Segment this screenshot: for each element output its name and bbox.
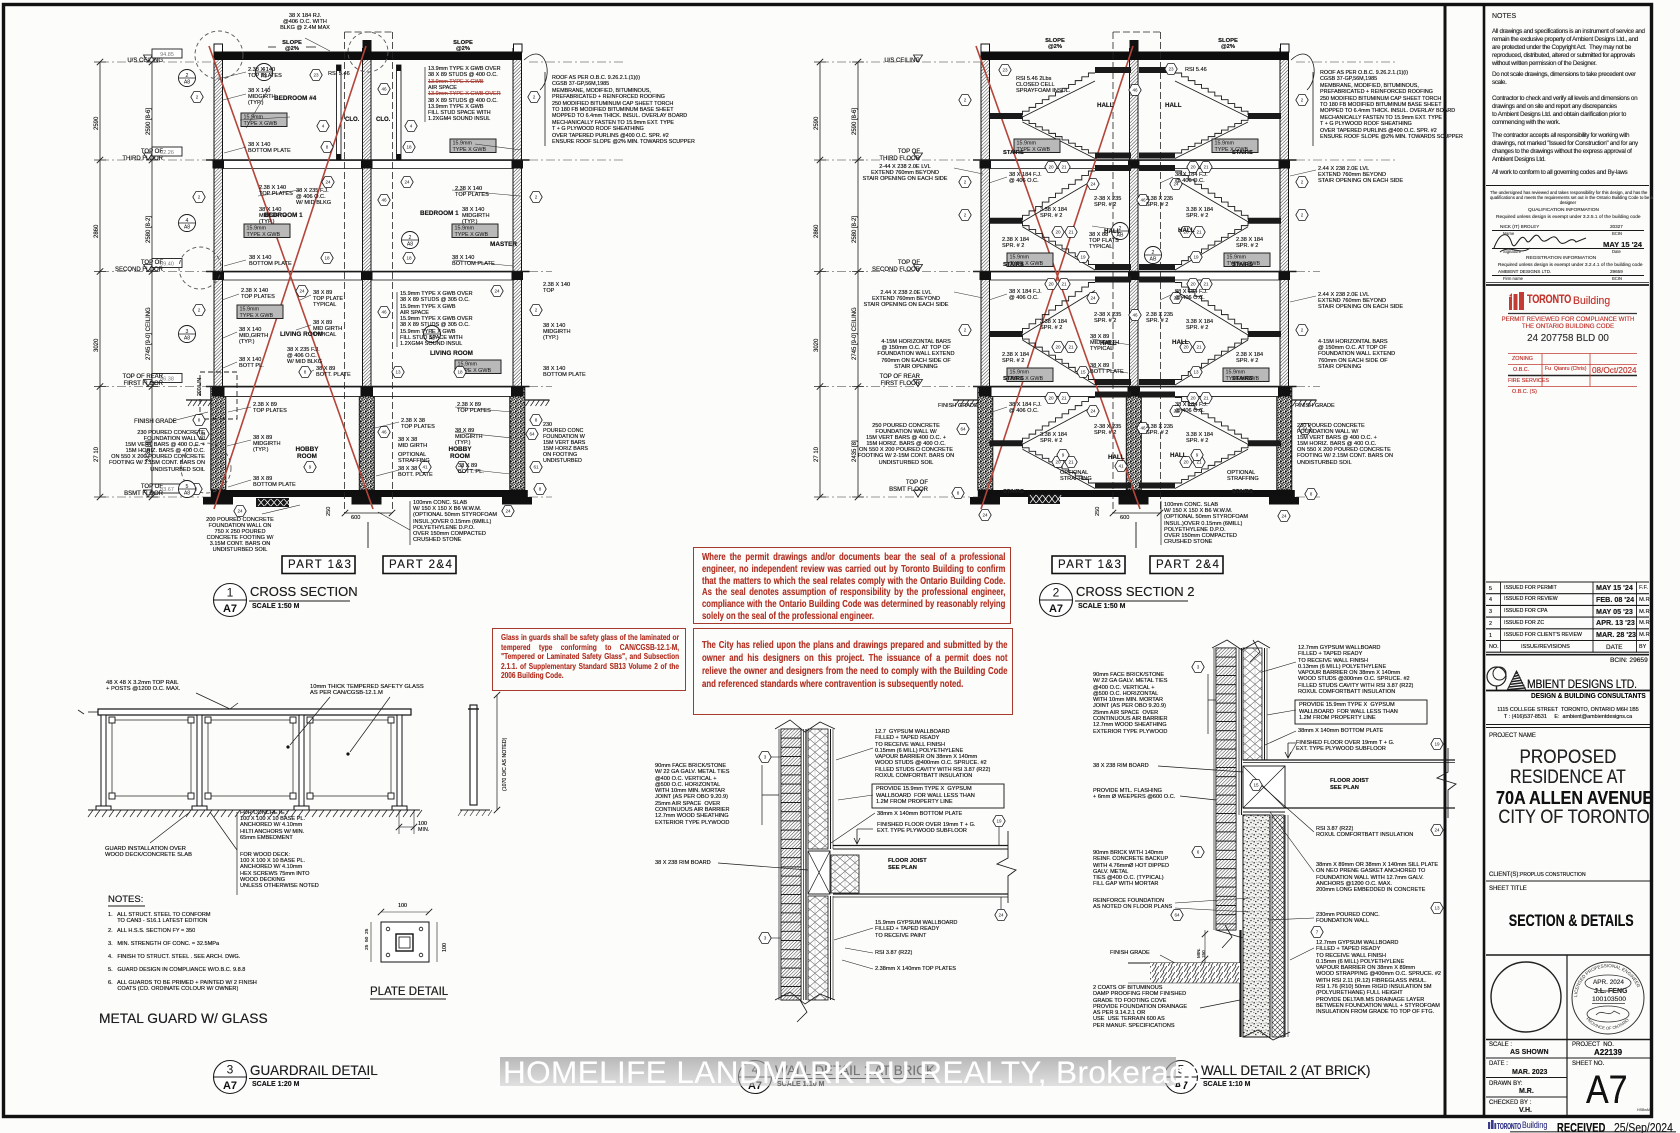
svg-text:21: 21 <box>1068 460 1074 465</box>
svg-text:24: 24 <box>1090 409 1096 414</box>
svg-text:15.9mm: 15.9mm <box>240 307 260 313</box>
svg-text:15.9mm: 15.9mm <box>1010 370 1030 376</box>
svg-text:21: 21 <box>1203 282 1209 287</box>
svg-text:A8: A8 <box>407 242 413 248</box>
svg-text:24: 24 <box>1090 296 1096 301</box>
svg-text:2: 2 <box>535 308 538 313</box>
svg-text:9: 9 <box>1062 453 1065 458</box>
svg-text:TYPE X GWB: TYPE X GWB <box>455 232 489 238</box>
svg-text:21: 21 <box>1068 345 1074 350</box>
svg-text:15: 15 <box>1080 370 1086 375</box>
svg-text:2: 2 <box>533 95 536 100</box>
svg-text:19: 19 <box>1434 742 1440 747</box>
svg-text:AB: AB <box>1150 257 1157 263</box>
svg-text:2: 2 <box>964 180 967 185</box>
svg-text:15.9mm: 15.9mm <box>247 226 267 232</box>
svg-text:2: 2 <box>964 98 967 103</box>
svg-text:A7: A7 <box>223 1080 237 1092</box>
svg-text:2: 2 <box>198 195 201 200</box>
svg-text:A8: A8 <box>184 225 190 231</box>
svg-text:2: 2 <box>1301 328 1304 333</box>
svg-text:21: 21 <box>1196 345 1202 350</box>
svg-text:24: 24 <box>237 509 243 514</box>
svg-text:8: 8 <box>539 487 542 492</box>
svg-text:24: 24 <box>404 180 410 185</box>
svg-text:64: 64 <box>960 427 966 432</box>
svg-text:2: 2 <box>1301 180 1304 185</box>
svg-text:3: 3 <box>764 936 767 941</box>
svg-text:PROVINCE OF ONTARIO: PROVINCE OF ONTARIO <box>1585 1016 1630 1030</box>
svg-text:4: 4 <box>186 218 189 224</box>
svg-text:2: 2 <box>1301 213 1304 218</box>
svg-text:15.9mm: 15.9mm <box>453 141 473 147</box>
svg-text:TYPE X GWB: TYPE X GWB <box>247 232 281 238</box>
svg-text:15.9mm: 15.9mm <box>1017 141 1037 147</box>
svg-text:15.9mm: 15.9mm <box>1010 255 1030 261</box>
svg-text:23: 23 <box>313 73 319 78</box>
svg-text:24: 24 <box>982 513 988 518</box>
svg-text:15.9mm: 15.9mm <box>1226 370 1246 376</box>
svg-text:20: 20 <box>1190 282 1196 287</box>
svg-text:20: 20 <box>1055 230 1061 235</box>
svg-text:2: 2 <box>1301 98 1304 103</box>
svg-text:19: 19 <box>1193 255 1199 260</box>
svg-text:9: 9 <box>1196 453 1199 458</box>
svg-text:24: 24 <box>1434 828 1440 833</box>
svg-text:2: 2 <box>964 328 967 333</box>
svg-text:21: 21 <box>1061 396 1067 401</box>
svg-text:24: 24 <box>998 913 1004 918</box>
svg-text:18: 18 <box>457 370 463 375</box>
svg-text:15.9mm: 15.9mm <box>1227 255 1247 261</box>
svg-text:2: 2 <box>1152 250 1155 256</box>
svg-text:20: 20 <box>1048 282 1054 287</box>
svg-text:23: 23 <box>1002 68 1008 73</box>
svg-text:6: 6 <box>1197 850 1200 855</box>
svg-text:9: 9 <box>309 465 312 470</box>
svg-text:TYPE X GWB: TYPE X GWB <box>240 313 274 319</box>
svg-text:A7: A7 <box>223 603 237 615</box>
svg-text:2: 2 <box>186 73 189 79</box>
svg-text:19: 19 <box>996 819 1002 824</box>
svg-text:20: 20 <box>1190 396 1196 401</box>
svg-text:46: 46 <box>381 198 387 203</box>
svg-text:8: 8 <box>535 418 538 423</box>
svg-text:TYPE X GWB: TYPE X GWB <box>453 147 487 153</box>
svg-text:A8: A8 <box>184 336 190 342</box>
svg-text:18: 18 <box>324 256 330 261</box>
svg-text:46: 46 <box>1132 88 1138 93</box>
svg-text:8: 8 <box>326 145 329 150</box>
svg-text:24: 24 <box>1090 182 1096 187</box>
svg-text:13: 13 <box>1193 370 1199 375</box>
svg-text:20: 20 <box>1055 345 1061 350</box>
svg-text:13: 13 <box>1434 906 1440 911</box>
svg-text:18: 18 <box>406 256 412 261</box>
svg-text:A7: A7 <box>1049 603 1063 615</box>
svg-text:46: 46 <box>381 430 387 435</box>
svg-text:64: 64 <box>1174 913 1180 918</box>
svg-text:20: 20 <box>1190 165 1196 170</box>
svg-text:3: 3 <box>1197 665 1200 670</box>
svg-text:8: 8 <box>1310 492 1313 497</box>
svg-text:24: 24 <box>494 289 500 294</box>
svg-text:A8: A8 <box>184 80 190 86</box>
svg-text:64: 64 <box>529 432 535 437</box>
svg-text:13: 13 <box>395 370 401 375</box>
svg-text:61: 61 <box>533 465 539 470</box>
svg-text:18: 18 <box>406 145 412 150</box>
svg-text:24: 24 <box>1281 514 1287 519</box>
svg-text:15: 15 <box>1253 783 1259 788</box>
svg-text:21: 21 <box>1068 230 1074 235</box>
svg-text:5: 5 <box>186 484 189 490</box>
svg-text:3: 3 <box>764 755 767 760</box>
svg-text:46: 46 <box>1132 313 1138 318</box>
svg-text:15.9mm: 15.9mm <box>1215 141 1235 147</box>
svg-text:2: 2 <box>964 213 967 218</box>
svg-text:21: 21 <box>1061 165 1067 170</box>
svg-text:8: 8 <box>957 491 960 496</box>
svg-text:20: 20 <box>1183 460 1189 465</box>
svg-text:24: 24 <box>325 180 331 185</box>
svg-text:21: 21 <box>1196 230 1202 235</box>
svg-text:23: 23 <box>1168 67 1174 72</box>
svg-text:15.9mm: 15.9mm <box>455 226 475 232</box>
svg-text:21: 21 <box>1203 165 1209 170</box>
svg-text:4: 4 <box>410 124 413 129</box>
svg-text:21: 21 <box>1061 282 1067 287</box>
svg-text:19: 19 <box>1080 255 1086 260</box>
svg-text:4: 4 <box>322 124 325 129</box>
svg-text:A8: A8 <box>184 491 190 497</box>
svg-text:21: 21 <box>1203 396 1209 401</box>
svg-text:2: 2 <box>409 235 412 241</box>
svg-text:41: 41 <box>1118 464 1124 469</box>
svg-text:2: 2 <box>198 308 201 313</box>
svg-text:8: 8 <box>198 418 201 423</box>
svg-text:20: 20 <box>1048 396 1054 401</box>
svg-text:24: 24 <box>299 289 305 294</box>
svg-text:3: 3 <box>186 329 189 335</box>
svg-text:7: 7 <box>1316 930 1319 935</box>
svg-text:8: 8 <box>304 370 307 375</box>
svg-text:20: 20 <box>1048 165 1054 170</box>
svg-text:2: 2 <box>1053 586 1060 600</box>
svg-text:2: 2 <box>196 95 199 100</box>
svg-text:1: 1 <box>227 586 234 600</box>
svg-text:3: 3 <box>227 1063 234 1077</box>
svg-text:24: 24 <box>505 509 511 514</box>
svg-text:46: 46 <box>381 87 387 92</box>
svg-text:46: 46 <box>381 310 387 315</box>
svg-text:2: 2 <box>535 195 538 200</box>
